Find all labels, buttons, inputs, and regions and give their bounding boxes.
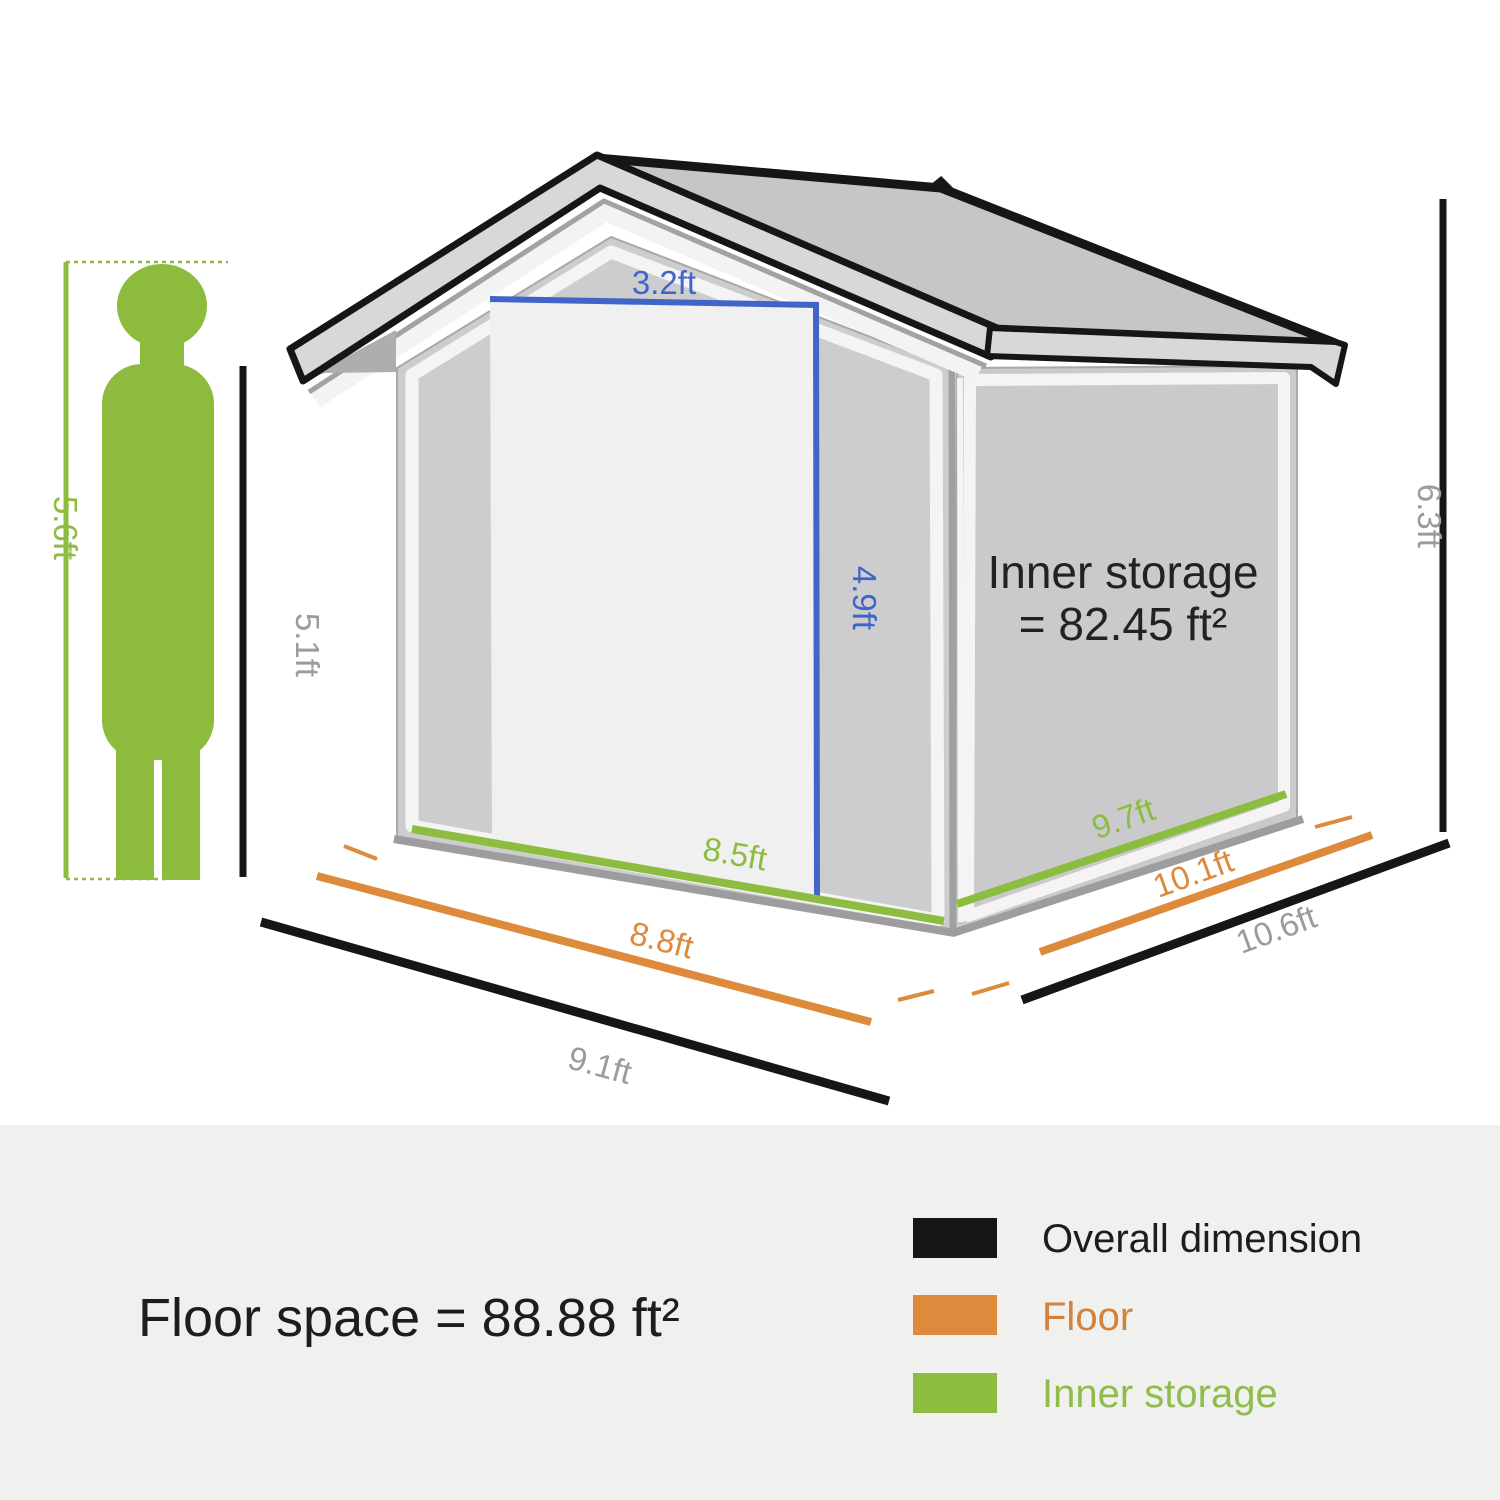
shed-door [490, 299, 818, 899]
wall-height-label: 5.1ft [289, 613, 326, 677]
legend-label-floor: Floor [1042, 1295, 1133, 1339]
floor-space-text: Floor space = 88.88 ft² [138, 1288, 680, 1348]
wall-height-dimension: 5.1ft [243, 366, 326, 877]
inner-storage-text-line2: = 82.45 ft² [1019, 598, 1227, 650]
person-height-label: 5.6ft [47, 496, 84, 560]
overall-width-label: 9.1ft [564, 1039, 636, 1091]
corner-post [952, 368, 953, 932]
legend-label-overall: Overall dimension [1042, 1217, 1362, 1261]
person-icon [102, 264, 214, 880]
overall-height-label: 6.3ft [1411, 484, 1448, 548]
corner-trim-highlight [960, 378, 961, 922]
legend-swatch-floor [913, 1295, 997, 1335]
shed-dimension-diagram: 5.6ft 5.1ft 6.3ft [0, 0, 1500, 1500]
person-leg-left [116, 690, 154, 880]
overall-height-dimension: 6.3ft [1411, 199, 1448, 832]
person-leg-right [162, 690, 200, 880]
legend-swatch-overall [913, 1218, 997, 1258]
floor-tick-corner-right [972, 983, 1009, 994]
floor-tick-corner-left [898, 991, 934, 1000]
legend-swatch-inner [913, 1373, 997, 1413]
person-head [117, 264, 207, 348]
floor-tick-front-left [344, 846, 377, 859]
door-height-label: 4.9ft [846, 566, 883, 630]
inner-storage-text-line1: Inner storage [987, 546, 1258, 598]
legend-label-inner: Inner storage [1042, 1372, 1278, 1416]
diagram-canvas: 5.6ft 5.1ft 6.3ft [0, 0, 1500, 1500]
door-width-label: 3.2ft [632, 264, 696, 301]
floor-tick-rear-right [1315, 817, 1352, 827]
